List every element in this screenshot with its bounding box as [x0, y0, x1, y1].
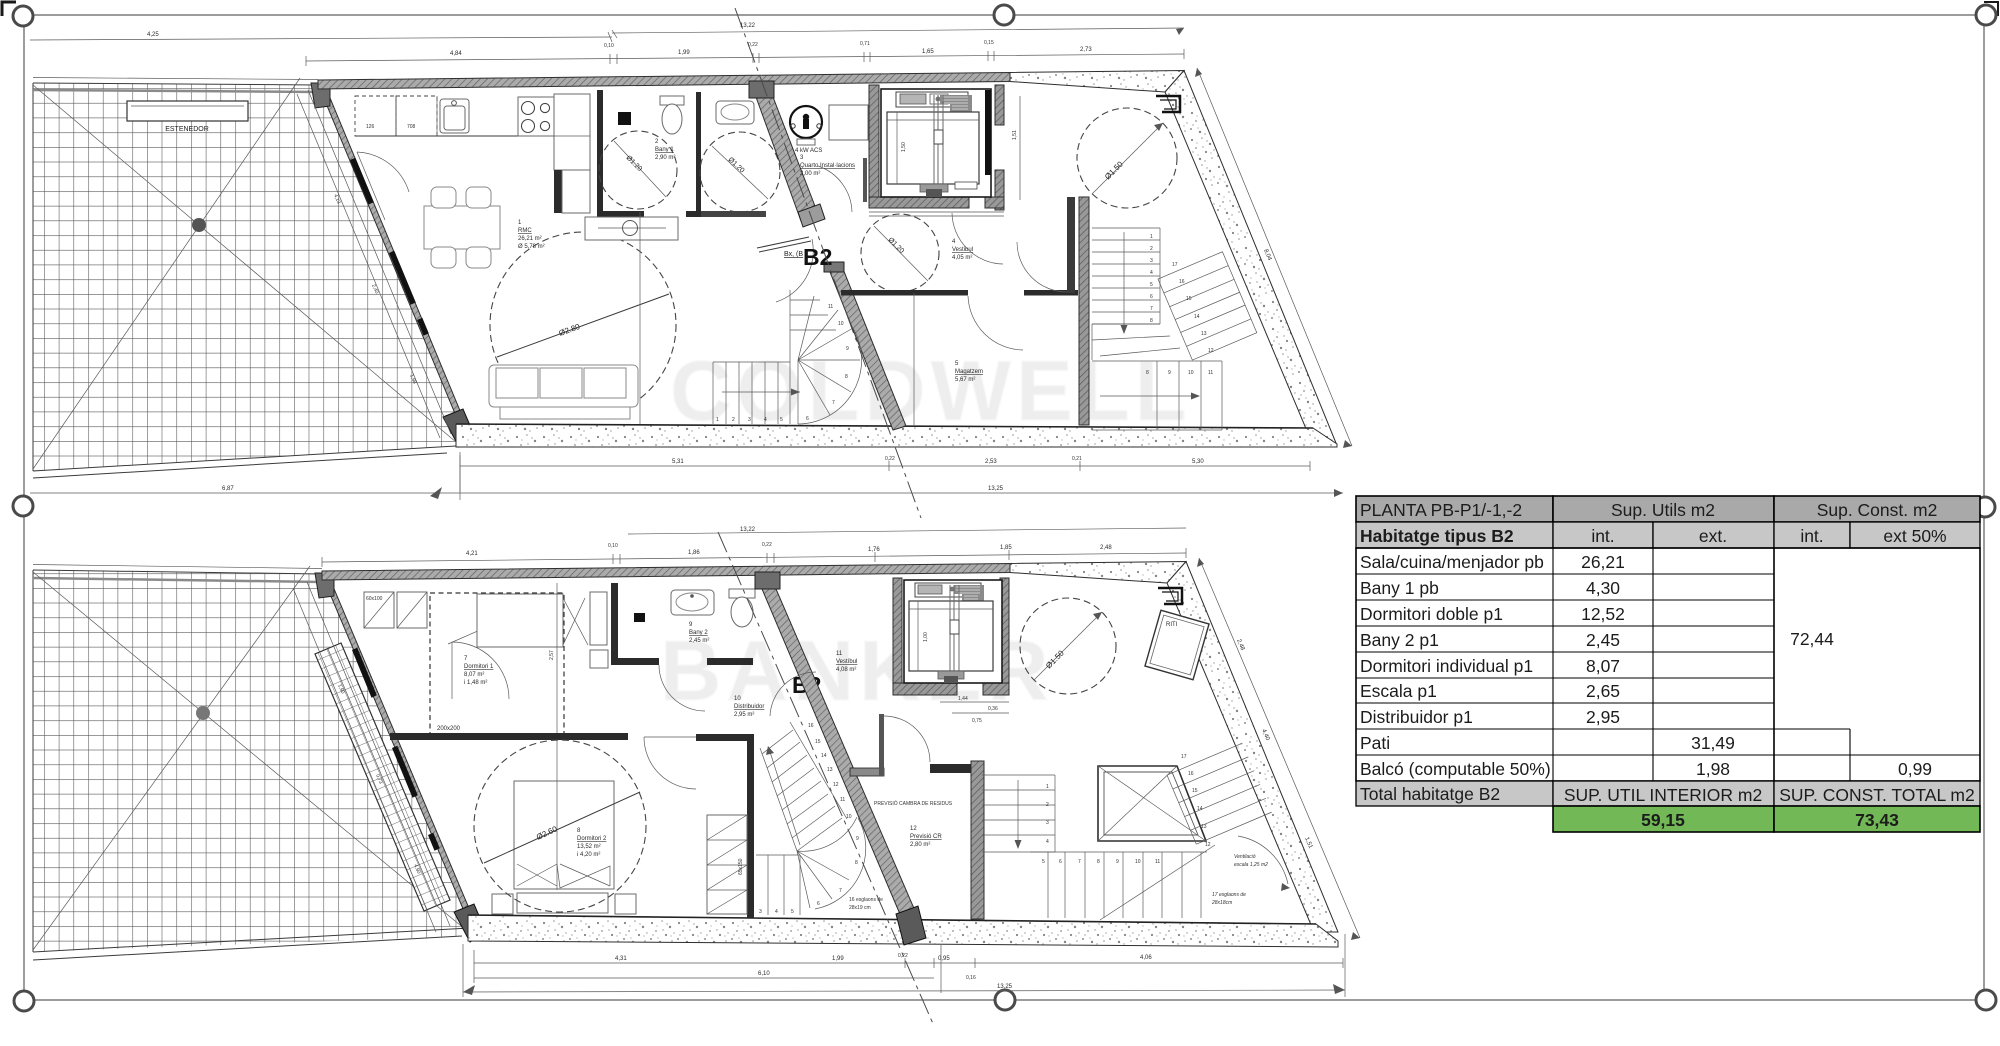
- svg-text:9: 9: [856, 836, 859, 842]
- svg-text:ext.: ext.: [1699, 526, 1727, 546]
- svg-text:Distribuidor p1: Distribuidor p1: [1360, 707, 1473, 727]
- svg-text:13,25: 13,25: [997, 984, 1013, 990]
- svg-text:0,22: 0,22: [762, 542, 772, 548]
- svg-text:13: 13: [1201, 824, 1207, 830]
- svg-text:8,07 m²: 8,07 m²: [464, 672, 484, 678]
- svg-text:8: 8: [845, 374, 848, 380]
- svg-text:Habitatge tipus B2: Habitatge tipus B2: [1360, 526, 1514, 546]
- svg-text:RMC: RMC: [518, 228, 532, 234]
- svg-text:Sup. Const. m2: Sup. Const. m2: [1817, 500, 1938, 520]
- svg-text:7: 7: [1078, 859, 1081, 865]
- svg-text:2,65: 2,65: [1586, 681, 1620, 701]
- svg-text:8: 8: [1150, 318, 1153, 324]
- svg-text:4,25: 4,25: [147, 32, 159, 38]
- svg-text:13,52 m²: 13,52 m²: [577, 844, 601, 850]
- svg-text:1: 1: [716, 417, 719, 423]
- svg-text:Dormitori doble p1: Dormitori doble p1: [1360, 604, 1503, 624]
- svg-text:9: 9: [1116, 859, 1119, 865]
- svg-text:Bany 1: Bany 1: [655, 147, 674, 153]
- svg-text:4: 4: [1150, 270, 1153, 276]
- svg-text:2,80 m²: 2,80 m²: [910, 842, 930, 848]
- svg-text:26,21 m²: 26,21 m²: [518, 236, 542, 242]
- svg-text:Bany 2 p1: Bany 2 p1: [1360, 630, 1439, 650]
- svg-text:1: 1: [1046, 784, 1049, 790]
- svg-text:5: 5: [780, 417, 783, 423]
- svg-text:4,31: 4,31: [615, 956, 627, 962]
- svg-text:0,22: 0,22: [898, 953, 908, 959]
- svg-text:17: 17: [1172, 262, 1178, 268]
- svg-text:12: 12: [910, 826, 917, 832]
- svg-text:1,44: 1,44: [958, 696, 968, 702]
- svg-text:7: 7: [832, 400, 835, 406]
- svg-text:Sala/cuina/menjador pb: Sala/cuina/menjador pb: [1360, 552, 1544, 572]
- svg-text:8: 8: [1146, 370, 1149, 376]
- svg-text:6,10: 6,10: [758, 971, 770, 977]
- svg-text:31,49: 31,49: [1691, 733, 1735, 753]
- svg-text:15: 15: [815, 739, 821, 745]
- svg-text:10: 10: [846, 814, 852, 820]
- svg-text:16: 16: [808, 723, 814, 729]
- svg-text:escala 1,25 m2: escala 1,25 m2: [1234, 862, 1268, 868]
- svg-text:4: 4: [764, 417, 767, 423]
- svg-text:2,57: 2,57: [549, 650, 555, 660]
- svg-text:26,21: 26,21: [1581, 552, 1625, 572]
- svg-text:0,22: 0,22: [885, 456, 895, 462]
- svg-text:5: 5: [791, 909, 794, 915]
- svg-text:2,45 m²: 2,45 m²: [689, 638, 709, 644]
- svg-text:0,99: 0,99: [1898, 759, 1932, 779]
- svg-text:5,67 m²: 5,67 m²: [955, 377, 975, 383]
- svg-text:Dormitori 1: Dormitori 1: [464, 664, 494, 670]
- svg-text:RITI: RITI: [1166, 622, 1178, 628]
- svg-text:4,21: 4,21: [466, 551, 478, 557]
- svg-text:Distribuidor: Distribuidor: [734, 704, 764, 710]
- svg-text:65x150: 65x150: [738, 858, 744, 875]
- svg-text:6: 6: [806, 416, 809, 422]
- svg-text:28x19 cm: 28x19 cm: [849, 905, 871, 911]
- svg-text:Vestíbul: Vestíbul: [836, 659, 857, 665]
- svg-text:0,10: 0,10: [604, 43, 614, 49]
- svg-text:11: 11: [1155, 859, 1160, 865]
- svg-text:3: 3: [1046, 820, 1049, 826]
- svg-text:0,21: 0,21: [1072, 456, 1082, 462]
- svg-text:PLANTA PB-P1/-1,-2: PLANTA PB-P1/-1,-2: [1360, 500, 1522, 520]
- svg-text:3: 3: [748, 417, 751, 423]
- svg-text:Bany 1 pb: Bany 1 pb: [1360, 578, 1439, 598]
- svg-text:Magatzem: Magatzem: [955, 369, 983, 375]
- svg-text:Ø 5,78 m²: Ø 5,78 m²: [518, 244, 545, 250]
- svg-text:1,50: 1,50: [901, 142, 907, 152]
- svg-text:i 4,20 m²: i 4,20 m²: [577, 852, 600, 858]
- svg-text:Sup. Utils m2: Sup. Utils m2: [1611, 500, 1715, 520]
- svg-text:2,95 m²: 2,95 m²: [734, 712, 754, 718]
- svg-text:Ventilació: Ventilació: [1234, 854, 1256, 860]
- svg-text:12: 12: [1205, 842, 1211, 848]
- svg-text:14: 14: [821, 753, 827, 759]
- svg-text:4,05 m²: 4,05 m²: [952, 255, 972, 261]
- svg-text:16: 16: [1179, 279, 1185, 285]
- svg-text:i 1,48 m²: i 1,48 m²: [464, 680, 487, 686]
- svg-text:11: 11: [828, 304, 833, 310]
- svg-text:10: 10: [1188, 370, 1194, 376]
- svg-text:2: 2: [1046, 802, 1049, 808]
- svg-text:15: 15: [1186, 296, 1192, 302]
- svg-text:10: 10: [1135, 859, 1141, 865]
- svg-text:2,53: 2,53: [985, 459, 997, 465]
- svg-text:1,99: 1,99: [832, 956, 844, 962]
- svg-text:int.: int.: [1591, 526, 1614, 546]
- svg-text:4 kW ACS: 4 kW ACS: [795, 148, 822, 154]
- svg-text:4,30: 4,30: [1586, 578, 1620, 598]
- svg-text:13: 13: [1201, 331, 1207, 337]
- svg-text:11: 11: [840, 797, 845, 803]
- svg-text:12: 12: [1208, 348, 1214, 354]
- svg-text:6,87: 6,87: [222, 486, 234, 492]
- svg-text:1,99: 1,99: [678, 50, 690, 56]
- svg-text:5: 5: [1042, 859, 1045, 865]
- svg-text:9: 9: [1168, 370, 1171, 376]
- svg-text:14: 14: [1194, 314, 1200, 320]
- svg-text:12,52: 12,52: [1581, 604, 1625, 624]
- svg-text:10: 10: [838, 321, 844, 327]
- svg-text:1,98: 1,98: [1696, 759, 1730, 779]
- svg-text:1,85: 1,85: [1000, 545, 1012, 551]
- svg-text:708: 708: [407, 124, 416, 130]
- svg-text:2,48: 2,48: [1100, 545, 1112, 551]
- svg-text:126: 126: [366, 124, 375, 130]
- svg-text:6: 6: [817, 901, 820, 907]
- svg-text:2,00 m²: 2,00 m²: [800, 171, 820, 177]
- svg-text:int.: int.: [1800, 526, 1823, 546]
- svg-text:7: 7: [839, 888, 842, 894]
- svg-text:7: 7: [1150, 306, 1153, 312]
- svg-text:3: 3: [1150, 258, 1153, 264]
- svg-text:2: 2: [1150, 246, 1153, 252]
- svg-text:Total habitatge B2: Total habitatge B2: [1360, 784, 1500, 804]
- svg-text:28x18cm: 28x18cm: [1211, 900, 1232, 906]
- svg-text:Bx, (B: Bx, (B: [784, 251, 803, 258]
- svg-text:11: 11: [1208, 370, 1213, 376]
- svg-text:5: 5: [1150, 282, 1153, 288]
- svg-text:SUP. UTIL INTERIOR m2: SUP. UTIL INTERIOR m2: [1564, 785, 1762, 805]
- svg-text:8: 8: [1097, 859, 1100, 865]
- svg-text:60x100: 60x100: [366, 596, 383, 602]
- svg-text:1,00: 1,00: [923, 632, 929, 642]
- svg-text:14: 14: [1197, 806, 1203, 812]
- svg-text:0,10: 0,10: [608, 543, 618, 549]
- svg-text:200x200: 200x200: [437, 726, 461, 732]
- svg-text:2,90 m²: 2,90 m²: [655, 155, 675, 161]
- svg-text:Pati: Pati: [1360, 733, 1390, 753]
- svg-text:10: 10: [734, 696, 741, 702]
- svg-text:Dormitori individual p1: Dormitori individual p1: [1360, 656, 1533, 676]
- svg-text:13,22: 13,22: [740, 23, 756, 29]
- svg-text:17 esglaons de: 17 esglaons de: [1212, 892, 1246, 898]
- svg-text:59,15: 59,15: [1641, 810, 1685, 830]
- svg-text:3: 3: [759, 909, 762, 915]
- svg-text:1,51: 1,51: [1012, 130, 1018, 140]
- svg-text:4: 4: [1046, 839, 1049, 845]
- svg-text:4: 4: [775, 909, 778, 915]
- svg-text:0,95: 0,95: [938, 956, 950, 962]
- svg-text:13,25: 13,25: [988, 486, 1004, 492]
- svg-text:73,43: 73,43: [1855, 810, 1899, 830]
- svg-text:Quarto Instal·lacions: Quarto Instal·lacions: [800, 163, 855, 169]
- svg-text:6: 6: [1150, 294, 1153, 300]
- svg-text:17: 17: [1181, 754, 1187, 760]
- svg-text:0,36: 0,36: [988, 706, 998, 712]
- svg-text:Escala p1: Escala p1: [1360, 681, 1437, 701]
- svg-text:ESTENEDOR: ESTENEDOR: [165, 126, 209, 133]
- svg-text:0,22: 0,22: [748, 42, 758, 48]
- svg-text:4,08 m²: 4,08 m²: [836, 667, 856, 673]
- svg-text:SUP. CONST. TOTAL m2: SUP. CONST. TOTAL m2: [1779, 785, 1974, 805]
- svg-text:Previsió CR: Previsió CR: [910, 834, 942, 840]
- svg-text:11: 11: [836, 651, 843, 657]
- svg-text:5,30: 5,30: [1192, 459, 1204, 465]
- svg-text:1,76: 1,76: [868, 547, 880, 553]
- svg-text:13,22: 13,22: [740, 527, 756, 533]
- svg-text:Balcó (computable 50%): Balcó (computable 50%): [1360, 759, 1551, 779]
- svg-text:0,15: 0,15: [984, 40, 994, 46]
- svg-text:12: 12: [833, 782, 839, 788]
- svg-text:5,31: 5,31: [672, 459, 684, 465]
- svg-text:13: 13: [827, 767, 833, 773]
- svg-text:ext 50%: ext 50%: [1883, 526, 1946, 546]
- svg-text:8,07: 8,07: [1586, 656, 1620, 676]
- svg-text:B2: B2: [803, 244, 832, 270]
- svg-text:2,95: 2,95: [1586, 707, 1620, 727]
- svg-text:6: 6: [1059, 859, 1062, 865]
- svg-text:Vestibul: Vestibul: [952, 247, 973, 253]
- svg-text:72,44: 72,44: [1790, 629, 1834, 649]
- svg-text:Bany 2: Bany 2: [689, 630, 708, 636]
- svg-text:1,86: 1,86: [688, 550, 700, 556]
- svg-text:0,16: 0,16: [966, 975, 976, 981]
- svg-text:0,71: 0,71: [860, 41, 870, 47]
- svg-text:8: 8: [855, 860, 858, 866]
- svg-text:1,65: 1,65: [922, 49, 934, 55]
- svg-text:Dormitori 2: Dormitori 2: [577, 836, 607, 842]
- svg-text:4,84: 4,84: [450, 51, 462, 57]
- svg-text:2,45: 2,45: [1586, 630, 1620, 650]
- svg-text:16: 16: [1188, 771, 1194, 777]
- svg-text:0,75: 0,75: [972, 718, 982, 724]
- svg-text:PREVISIÓ CAMBRA DE RESIDUS: PREVISIÓ CAMBRA DE RESIDUS: [874, 800, 953, 807]
- svg-text:2,73: 2,73: [1080, 47, 1092, 53]
- svg-text:1: 1: [1150, 234, 1153, 240]
- svg-text:9: 9: [846, 346, 849, 352]
- svg-text:15: 15: [1192, 788, 1198, 794]
- svg-text:4,06: 4,06: [1140, 955, 1152, 961]
- svg-text:2: 2: [732, 417, 735, 423]
